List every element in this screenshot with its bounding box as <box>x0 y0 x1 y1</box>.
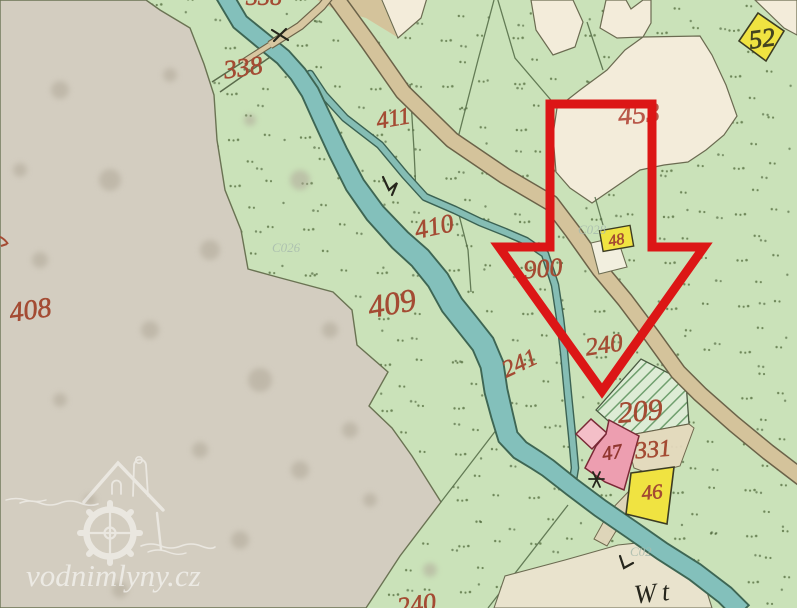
svg-text:900: 900 <box>522 252 563 284</box>
svg-text:C028: C028 <box>578 222 607 237</box>
svg-text:338: 338 <box>245 0 282 11</box>
svg-text:W t: W t <box>632 576 672 608</box>
svg-text:408: 408 <box>7 292 53 329</box>
svg-text:209: 209 <box>616 393 664 430</box>
svg-text:46: 46 <box>640 479 664 505</box>
svg-text:C026: C026 <box>272 240 301 255</box>
svg-text:331: 331 <box>633 435 672 464</box>
svg-text:vodnimlyny.cz: vodnimlyny.cz <box>26 558 201 593</box>
svg-text:48: 48 <box>607 231 626 251</box>
svg-text:338: 338 <box>221 50 265 84</box>
svg-text:52: 52 <box>747 22 777 54</box>
svg-text:240: 240 <box>584 329 625 361</box>
svg-text:C02: C02 <box>630 544 652 559</box>
